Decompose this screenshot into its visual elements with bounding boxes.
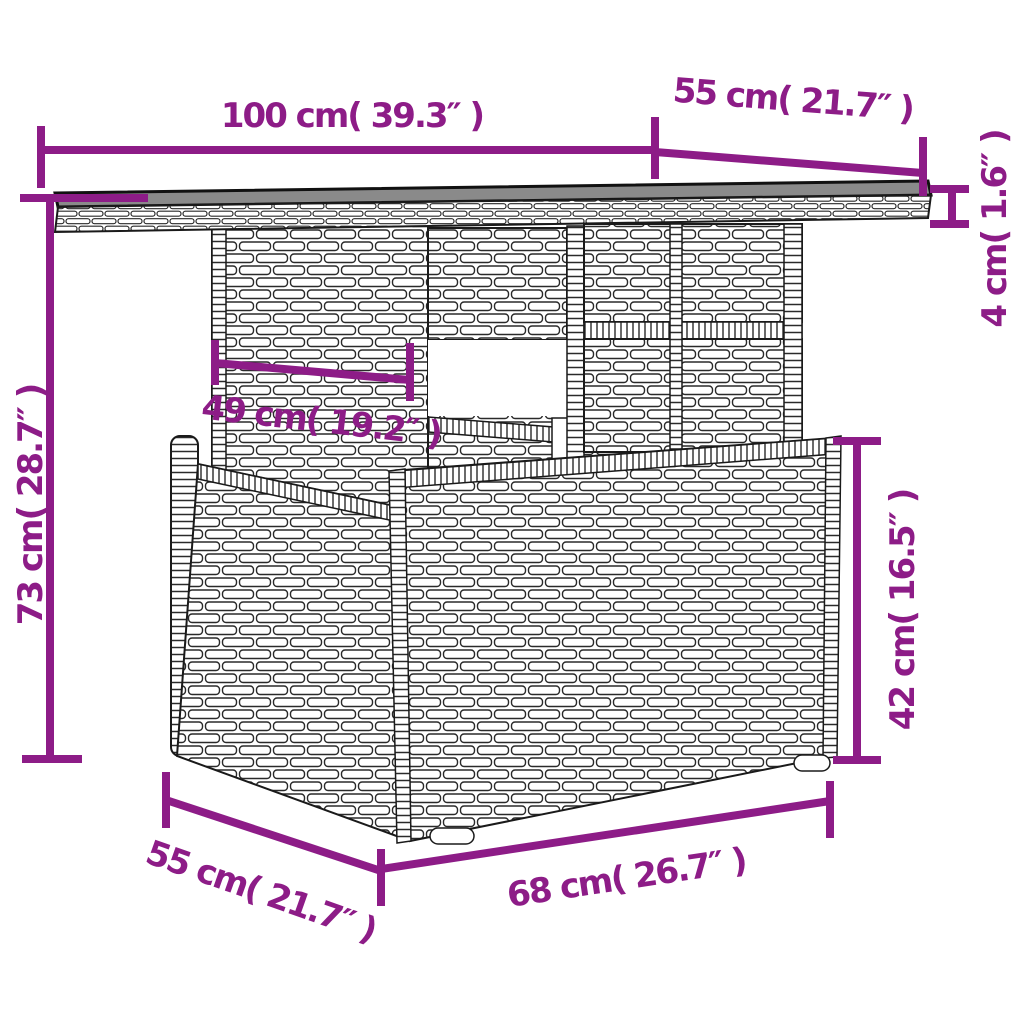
support-right-lower-face: [584, 339, 802, 452]
dim-tabletop-width: 100 cm( 39.3″ ): [41, 96, 655, 188]
support-right-upper-face: [584, 224, 802, 322]
diagram-svg: 100 cm( 39.3″ ) 55 cm( 21.7″ ) 4 cm( 1.6…: [0, 0, 1024, 1024]
dim-base-width-label: 68 cm( 26.7″ ): [504, 840, 748, 916]
support-right-mid-bead: [670, 224, 682, 449]
dim-tabletop-thickness-label: 4 cm( 1.6″ ): [975, 130, 1015, 327]
dim-base-height: 42 cm( 16.5″ ): [833, 441, 923, 760]
base-right-bead: [823, 436, 841, 758]
dim-tabletop-width-label: 100 cm( 39.3″ ): [221, 96, 483, 136]
base-box: [171, 436, 841, 844]
base-right-foot: [794, 755, 830, 771]
dim-tabletop-thickness: 4 cm( 1.6″ ): [930, 130, 1015, 327]
dim-overall-height: 73 cm( 28.7″ ): [11, 198, 148, 759]
support-window: [428, 340, 567, 416]
dim-tabletop-depth-label: 55 cm( 21.7″ ): [671, 71, 914, 130]
support-right-rail: [584, 322, 802, 339]
dim-overall-height-label: 73 cm( 28.7″ ): [11, 385, 51, 626]
base-front-foot: [430, 828, 474, 844]
table-illustration: [55, 181, 931, 844]
support-mid-bead: [567, 226, 584, 462]
dim-base-height-label: 42 cm( 16.5″ ): [883, 490, 923, 731]
base-front-face: [404, 438, 834, 841]
support-mid-face: [428, 228, 567, 340]
dimension-diagram: 100 cm( 39.3″ ) 55 cm( 21.7″ ) 4 cm( 1.6…: [0, 0, 1024, 1024]
dim-tabletop-depth: 55 cm( 21.7″ ): [655, 71, 923, 196]
dim-base-depth-label: 55 cm( 21.7″ ): [141, 833, 381, 951]
support-right-edge-bead: [784, 224, 802, 445]
base-left-face: [177, 464, 402, 838]
